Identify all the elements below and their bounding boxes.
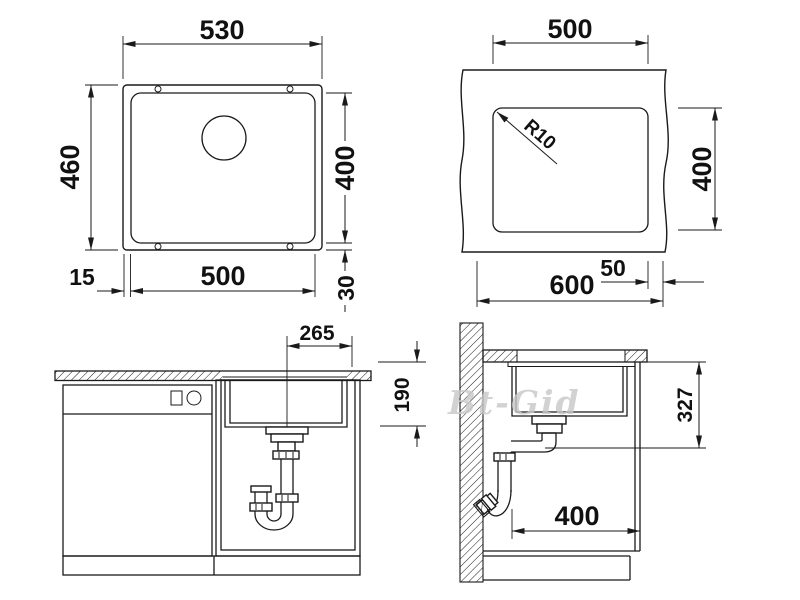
wall-section xyxy=(460,323,483,582)
dim-counter-width-label: 600 xyxy=(549,270,594,300)
dim-drain-height-label: 327 xyxy=(674,387,697,422)
view-cabinet-front: 265 190 xyxy=(55,322,426,575)
control-knob-detail xyxy=(187,391,201,405)
dim-inner-width-label: 500 xyxy=(200,261,245,291)
dim-cutout-width-label: 500 xyxy=(547,14,592,44)
watermark-text: Bt-Gid xyxy=(447,383,581,422)
view-cutout-plan: R10 500 400 600 50 xyxy=(460,14,722,307)
dim-edge-offset-label: 50 xyxy=(600,255,626,281)
dim-outer-height-label: 460 xyxy=(55,144,85,189)
dim-outer-width-label: 530 xyxy=(199,15,244,45)
view-sink-top: 530 460 400 30 15 500 xyxy=(55,15,360,312)
plinth xyxy=(63,556,360,575)
sink-outer-rim xyxy=(123,85,322,250)
drain-trap-front xyxy=(250,427,308,530)
bowl-front-outer xyxy=(225,380,347,427)
countertop-section xyxy=(460,70,668,252)
dim-cutout-height-label: 400 xyxy=(687,146,717,191)
dim-rim-left-label: 15 xyxy=(69,264,95,290)
sink-rim-side xyxy=(508,362,635,367)
control-panel-detail xyxy=(171,391,182,405)
dim-drain-offset-label: 265 xyxy=(299,322,334,345)
dim-min-cabinet-width-label: 400 xyxy=(554,501,599,531)
dim-bowl-depth-label: 190 xyxy=(391,377,414,412)
sink-base-cabinet xyxy=(216,380,360,556)
technical-drawing-page: 530 460 400 30 15 500 xyxy=(0,0,800,600)
left-cabinet xyxy=(63,385,212,556)
bowl-front-inner xyxy=(230,380,342,423)
dim-inner-height-label: 400 xyxy=(330,145,360,190)
dim-rim-bottom-label: 30 xyxy=(333,275,359,301)
drain-trap-side xyxy=(474,416,566,517)
view-cabinet-side: 327 400 xyxy=(460,323,706,582)
sink-installation-drawing: 530 460 400 30 15 500 xyxy=(0,0,800,600)
